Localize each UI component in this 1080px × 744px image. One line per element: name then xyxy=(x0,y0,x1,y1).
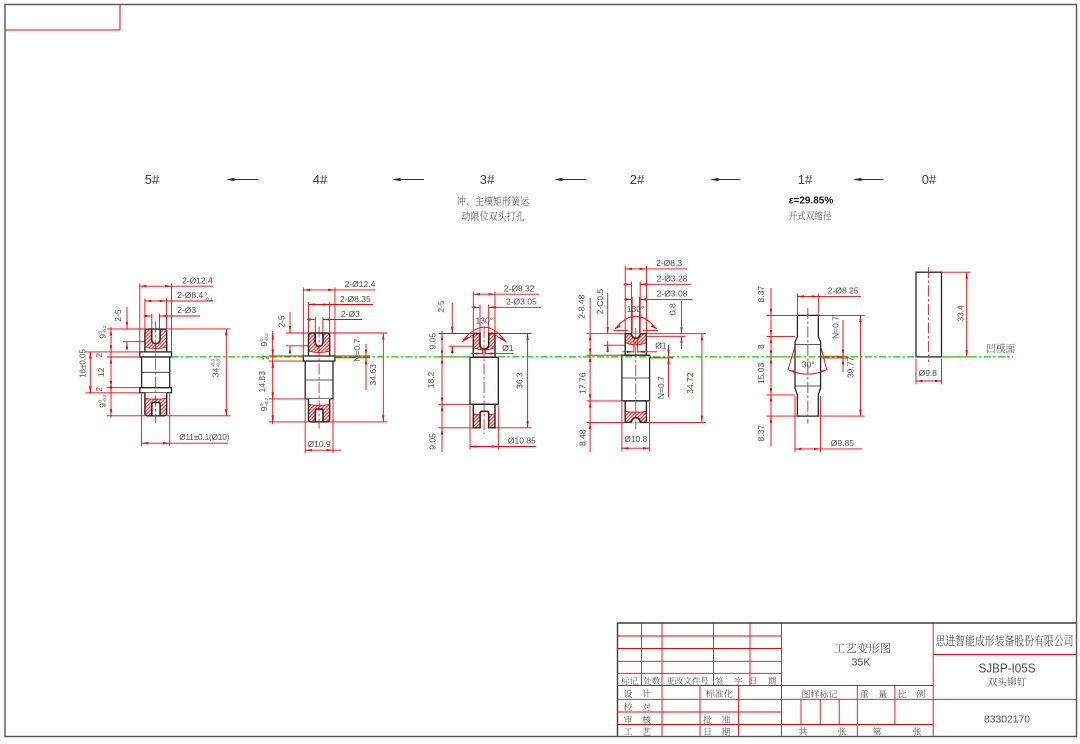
svg-text:0.8: 0.8 xyxy=(668,303,678,315)
svg-text:130°: 130° xyxy=(476,316,494,326)
svg-text:2-C0.5: 2-C0.5 xyxy=(595,288,605,314)
svg-text:2-Ø3.08: 2-Ø3.08 xyxy=(657,289,688,299)
svg-text:1#: 1# xyxy=(798,172,813,187)
svg-text:Ø10.8: Ø10.8 xyxy=(624,434,647,444)
svg-text:15.03: 15.03 xyxy=(756,362,766,384)
svg-text:Ø10.9: Ø10.9 xyxy=(308,439,331,449)
svg-text:2-Ø8.32: 2-Ø8.32 xyxy=(504,284,535,294)
svg-text:2-Ø8.25: 2-Ø8.25 xyxy=(828,286,859,296)
svg-text:4#: 4# xyxy=(313,172,328,187)
svg-text:Ø9.8: Ø9.8 xyxy=(919,368,938,378)
svg-text:N=0.7: N=0.7 xyxy=(656,376,666,399)
svg-text:2: 2 xyxy=(94,353,104,358)
svg-text:130°: 130° xyxy=(627,304,645,314)
svg-text:SJBP-I05S: SJBP-I05S xyxy=(979,661,1036,676)
svg-text:Ø1: Ø1 xyxy=(502,343,514,353)
svg-text:2-5: 2-5 xyxy=(436,300,446,313)
svg-text:-0.8: -0.8 xyxy=(215,359,221,368)
svg-text:12: 12 xyxy=(96,367,106,377)
svg-text:2-Ø12.4: 2-Ø12.4 xyxy=(345,279,376,289)
svg-text:2-Ø3: 2-Ø3 xyxy=(177,305,196,315)
svg-text:2-8.48: 2-8.48 xyxy=(576,294,586,318)
svg-text:2-5: 2-5 xyxy=(276,315,286,328)
svg-text:2-Ø3.05: 2-Ø3.05 xyxy=(506,297,537,307)
svg-text:8.37: 8.37 xyxy=(756,425,766,442)
svg-text:17.76: 17.76 xyxy=(578,372,588,394)
svg-text:Ø1: Ø1 xyxy=(655,341,667,351)
svg-text:83302170: 83302170 xyxy=(984,714,1030,726)
svg-text:36.3: 36.3 xyxy=(515,372,525,389)
svg-text:Ø10.85: Ø10.85 xyxy=(508,435,536,445)
svg-text:34.72: 34.72 xyxy=(685,372,695,394)
svg-text:9.05: 9.05 xyxy=(428,433,438,450)
svg-text:8: 8 xyxy=(756,344,766,349)
svg-text:2-Ø3: 2-Ø3 xyxy=(341,309,360,319)
svg-text:9.05: 9.05 xyxy=(428,333,438,350)
svg-text:39.77: 39.77 xyxy=(846,356,856,378)
svg-text:16±0.05: 16±0.05 xyxy=(78,349,87,378)
svg-text:2-5: 2-5 xyxy=(113,309,123,322)
svg-text:2-Ø8.4: 2-Ø8.4 xyxy=(177,290,203,300)
svg-text:2-Ø12.4: 2-Ø12.4 xyxy=(182,276,213,286)
svg-text:5#: 5# xyxy=(145,172,160,187)
svg-text:3#: 3# xyxy=(480,172,495,187)
svg-text:-0.1: -0.1 xyxy=(205,296,214,302)
svg-text:18.2: 18.2 xyxy=(426,371,436,388)
svg-text:8.48: 8.48 xyxy=(578,429,588,446)
svg-text:2#: 2# xyxy=(630,172,645,187)
svg-text:8.37: 8.37 xyxy=(756,286,766,303)
svg-text:33.4: 33.4 xyxy=(956,305,966,322)
svg-text:2: 2 xyxy=(94,387,104,392)
svg-text:N=0.7: N=0.7 xyxy=(830,316,840,339)
svg-text:Ø11±0.1(Ø10): Ø11±0.1(Ø10) xyxy=(179,433,229,442)
svg-text:2-Ø8.35: 2-Ø8.35 xyxy=(340,294,371,304)
svg-text:14.83: 14.83 xyxy=(257,371,267,393)
svg-text:N=0.7: N=0.7 xyxy=(352,338,362,361)
svg-text:9: 9 xyxy=(259,342,269,347)
svg-text:9: 9 xyxy=(97,334,107,339)
svg-text:9: 9 xyxy=(97,403,107,408)
svg-text:35K: 35K xyxy=(852,657,871,669)
svg-text:0#: 0# xyxy=(922,172,937,187)
svg-text:9: 9 xyxy=(259,406,269,411)
svg-text:-0.2: -0.2 xyxy=(264,333,270,342)
svg-text:ε=29.85%: ε=29.85% xyxy=(789,196,834,207)
svg-text:2-Ø3.28: 2-Ø3.28 xyxy=(657,274,688,284)
svg-text:34: 34 xyxy=(211,368,221,378)
svg-text:34.63: 34.63 xyxy=(368,364,378,386)
svg-text:-0.2: -0.2 xyxy=(102,394,108,403)
svg-text:2-Ø8.3: 2-Ø8.3 xyxy=(656,258,682,268)
svg-text:-0.2: -0.2 xyxy=(264,398,270,407)
svg-text:Ø9.85: Ø9.85 xyxy=(831,438,854,448)
svg-text:-0.2: -0.2 xyxy=(102,325,108,334)
